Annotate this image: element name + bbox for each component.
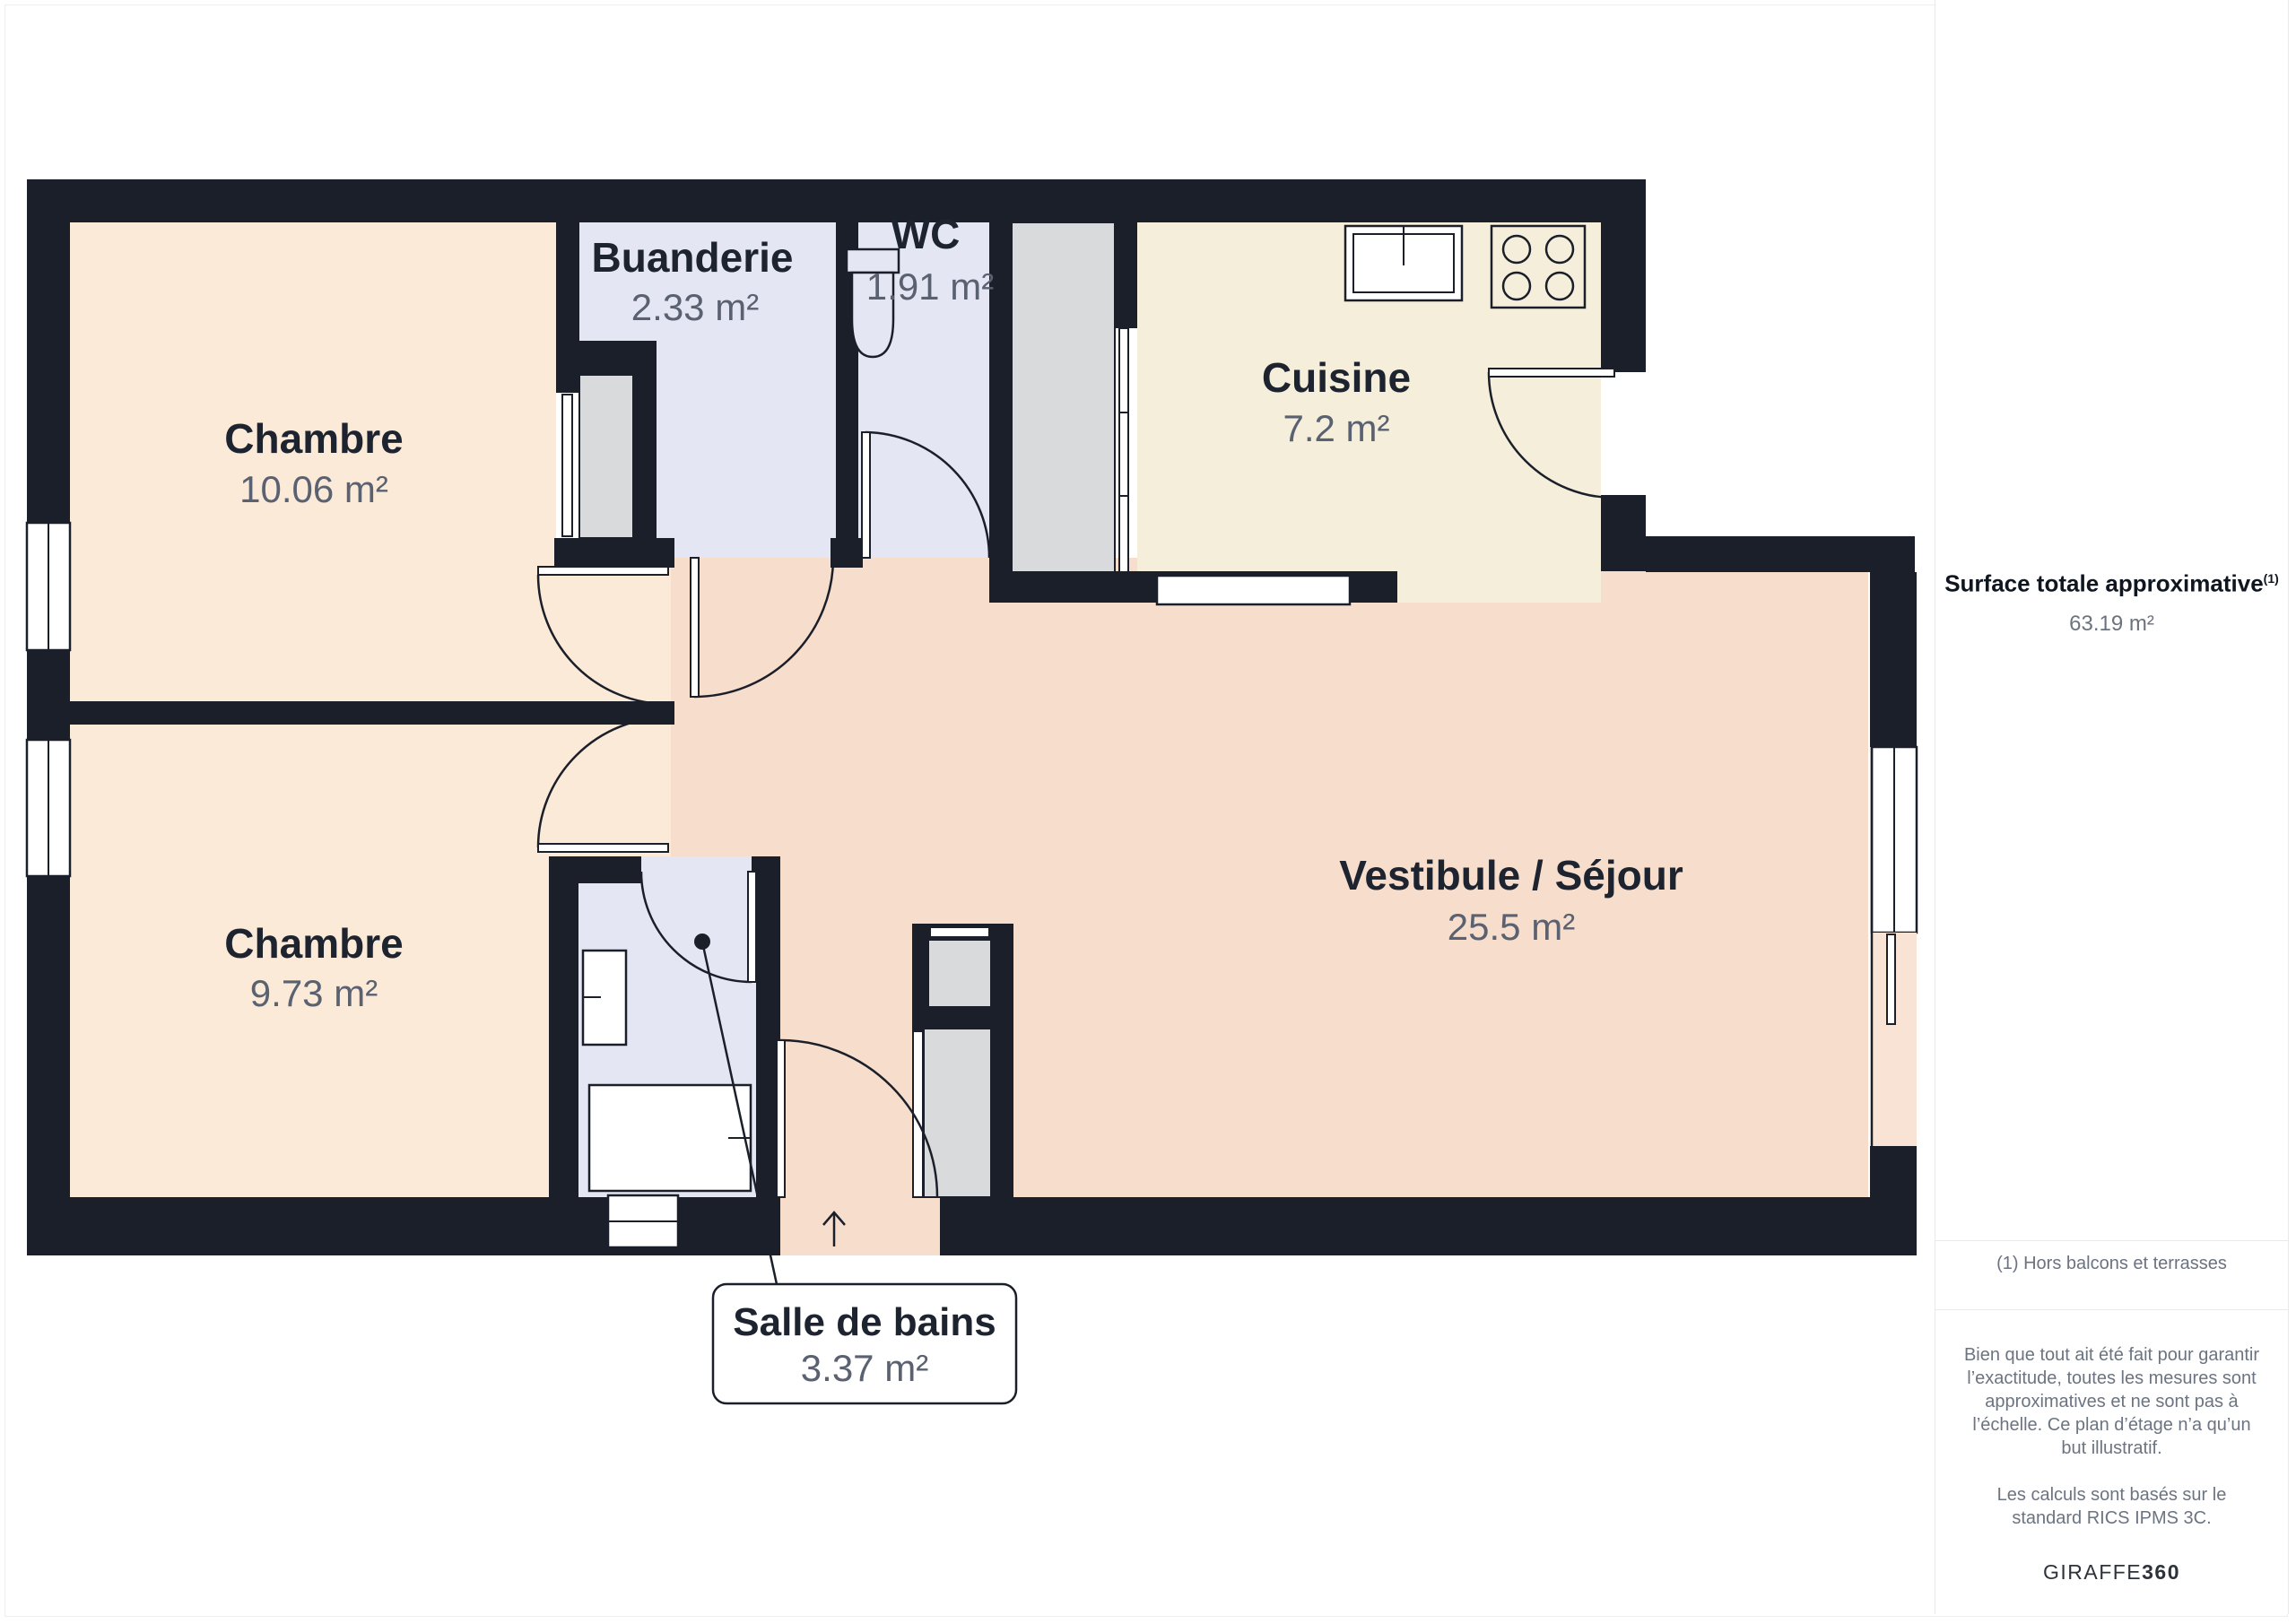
divider-bottom	[1935, 1309, 2288, 1310]
closet-hall-upper	[928, 927, 991, 1007]
wall-bottom-right	[940, 1197, 1917, 1255]
label-wc-area: 1.91 m²	[866, 265, 994, 308]
floor-vestibule-sejour	[671, 558, 1868, 1255]
label-buanderie-name: Buanderie	[592, 234, 794, 281]
label-buanderie-area: 2.33 m²	[631, 286, 759, 328]
bathroom-sink	[583, 951, 626, 1045]
wall-closet1-right	[633, 375, 657, 547]
label-chambre2-area: 9.73 m²	[250, 972, 378, 1014]
wall-bath-top-left	[578, 856, 641, 883]
brand-suffix: 360	[2142, 1560, 2180, 1584]
pass-through-cuisine	[1157, 576, 1350, 604]
total-area-title: Surface totale approximative(1)	[1935, 565, 2288, 597]
wall-buanderie-wc-foot	[831, 538, 863, 568]
wall-vestibule-right-lower	[1870, 1146, 1917, 1255]
wall-vestibule-right-upper	[1870, 572, 1917, 747]
disclaimer: Bien que tout ait été fait pour garantir…	[1963, 1343, 2260, 1553]
callout-salle-de-bains-name: Salle de bains	[733, 1300, 996, 1344]
label-chambre2-name: Chambre	[224, 920, 403, 967]
footnote: (1) Hors balcons et terrasses	[1935, 1254, 2288, 1274]
bathtub	[589, 1085, 751, 1191]
closet-hall-lower	[913, 1029, 991, 1197]
wall-chambres-divider	[70, 701, 674, 725]
label-chambre1-area: 10.06 m²	[239, 468, 388, 510]
kitchen-sink	[1345, 226, 1462, 300]
label-wc-name: WC	[891, 211, 961, 257]
wall-vestibule-top	[1646, 536, 1915, 572]
callout-salle-de-bains: Salle de bains 3.37 m²	[713, 1284, 1016, 1403]
brand-logo: GIRAFFE360	[1935, 1560, 2288, 1585]
total-area-value: 63.19 m²	[1935, 612, 2288, 637]
label-cuisine-area: 7.2 m²	[1283, 407, 1389, 449]
stove	[1492, 226, 1585, 308]
label-cuisine-name: Cuisine	[1262, 354, 1411, 401]
window-salle-de-bains	[608, 1195, 678, 1247]
label-vestibule-name: Vestibule / Séjour	[1339, 852, 1683, 899]
wall-closet1-top	[579, 341, 657, 375]
info-sidebar: Surface totale approximative(1) 63.19 m²…	[1935, 0, 2289, 1614]
wall-below-closet1	[554, 538, 674, 568]
wall-top	[27, 179, 1646, 222]
wall-left	[27, 179, 70, 1255]
wall-cuisine-right	[1601, 179, 1646, 372]
closet-kitchen	[1012, 222, 1128, 572]
wall-cuisine-right-stub	[1601, 495, 1646, 571]
total-area-block: Surface totale approximative(1) 63.19 m²	[1935, 565, 2288, 637]
brand-name: GIRAFFE	[2043, 1560, 2142, 1584]
total-area-title-text: Surface totale approximative	[1944, 570, 2263, 597]
leader-dot	[694, 934, 710, 950]
window-vestibule	[1872, 747, 1917, 933]
wall-closet-kitchen-stub	[1115, 222, 1137, 328]
window-chambre1	[27, 523, 70, 650]
disclaimer-paragraph-1: Bien que tout ait été fait pour garantir…	[1963, 1343, 2260, 1460]
closet-chambre1	[562, 375, 633, 538]
disclaimer-paragraph-2: Les calculs sont basés sur le standard R…	[1963, 1483, 2260, 1530]
wall-chambre1-right	[556, 222, 579, 393]
callout-salle-de-bains-area: 3.37 m²	[801, 1347, 928, 1389]
label-vestibule-area: 25.5 m²	[1448, 906, 1575, 948]
wall-bath-left	[549, 856, 578, 1197]
label-chambre1-name: Chambre	[224, 415, 403, 462]
window-chambre2	[27, 740, 70, 876]
total-area-footnote-marker: (1)	[2264, 571, 2279, 586]
divider-top	[1935, 1240, 2288, 1241]
